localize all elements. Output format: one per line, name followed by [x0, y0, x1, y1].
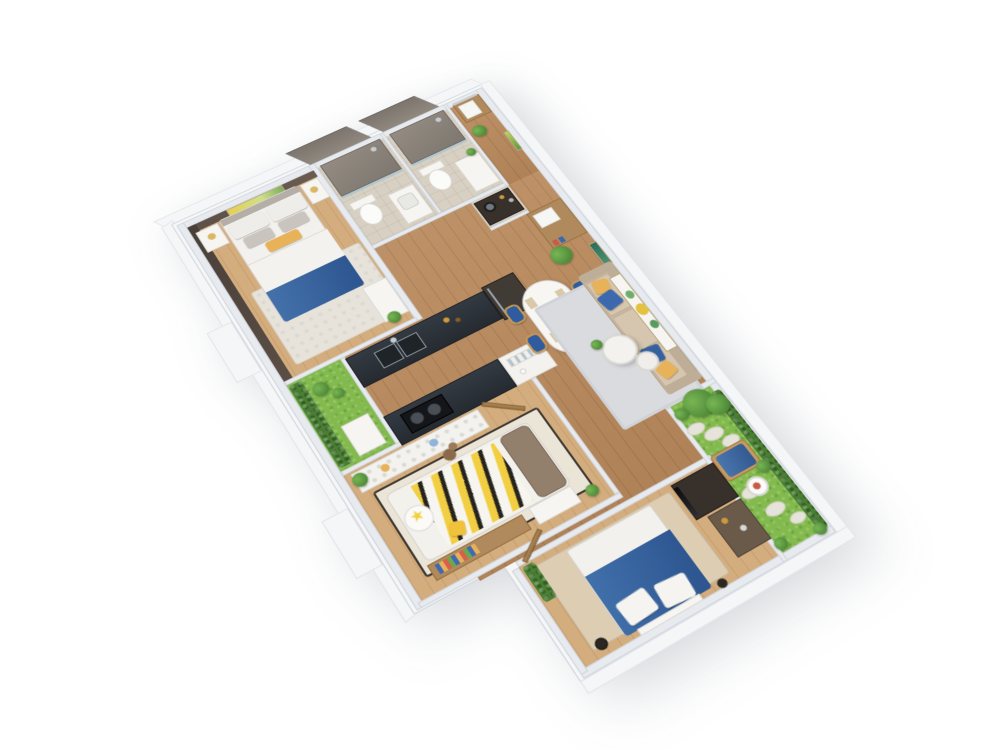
floorplan: ★: [176, 91, 827, 732]
apartment-3d-floorplan-render: ★: [0, 0, 1000, 750]
kids-yellow-star-cushion: [448, 520, 467, 537]
artwork-leaf: [624, 289, 637, 300]
